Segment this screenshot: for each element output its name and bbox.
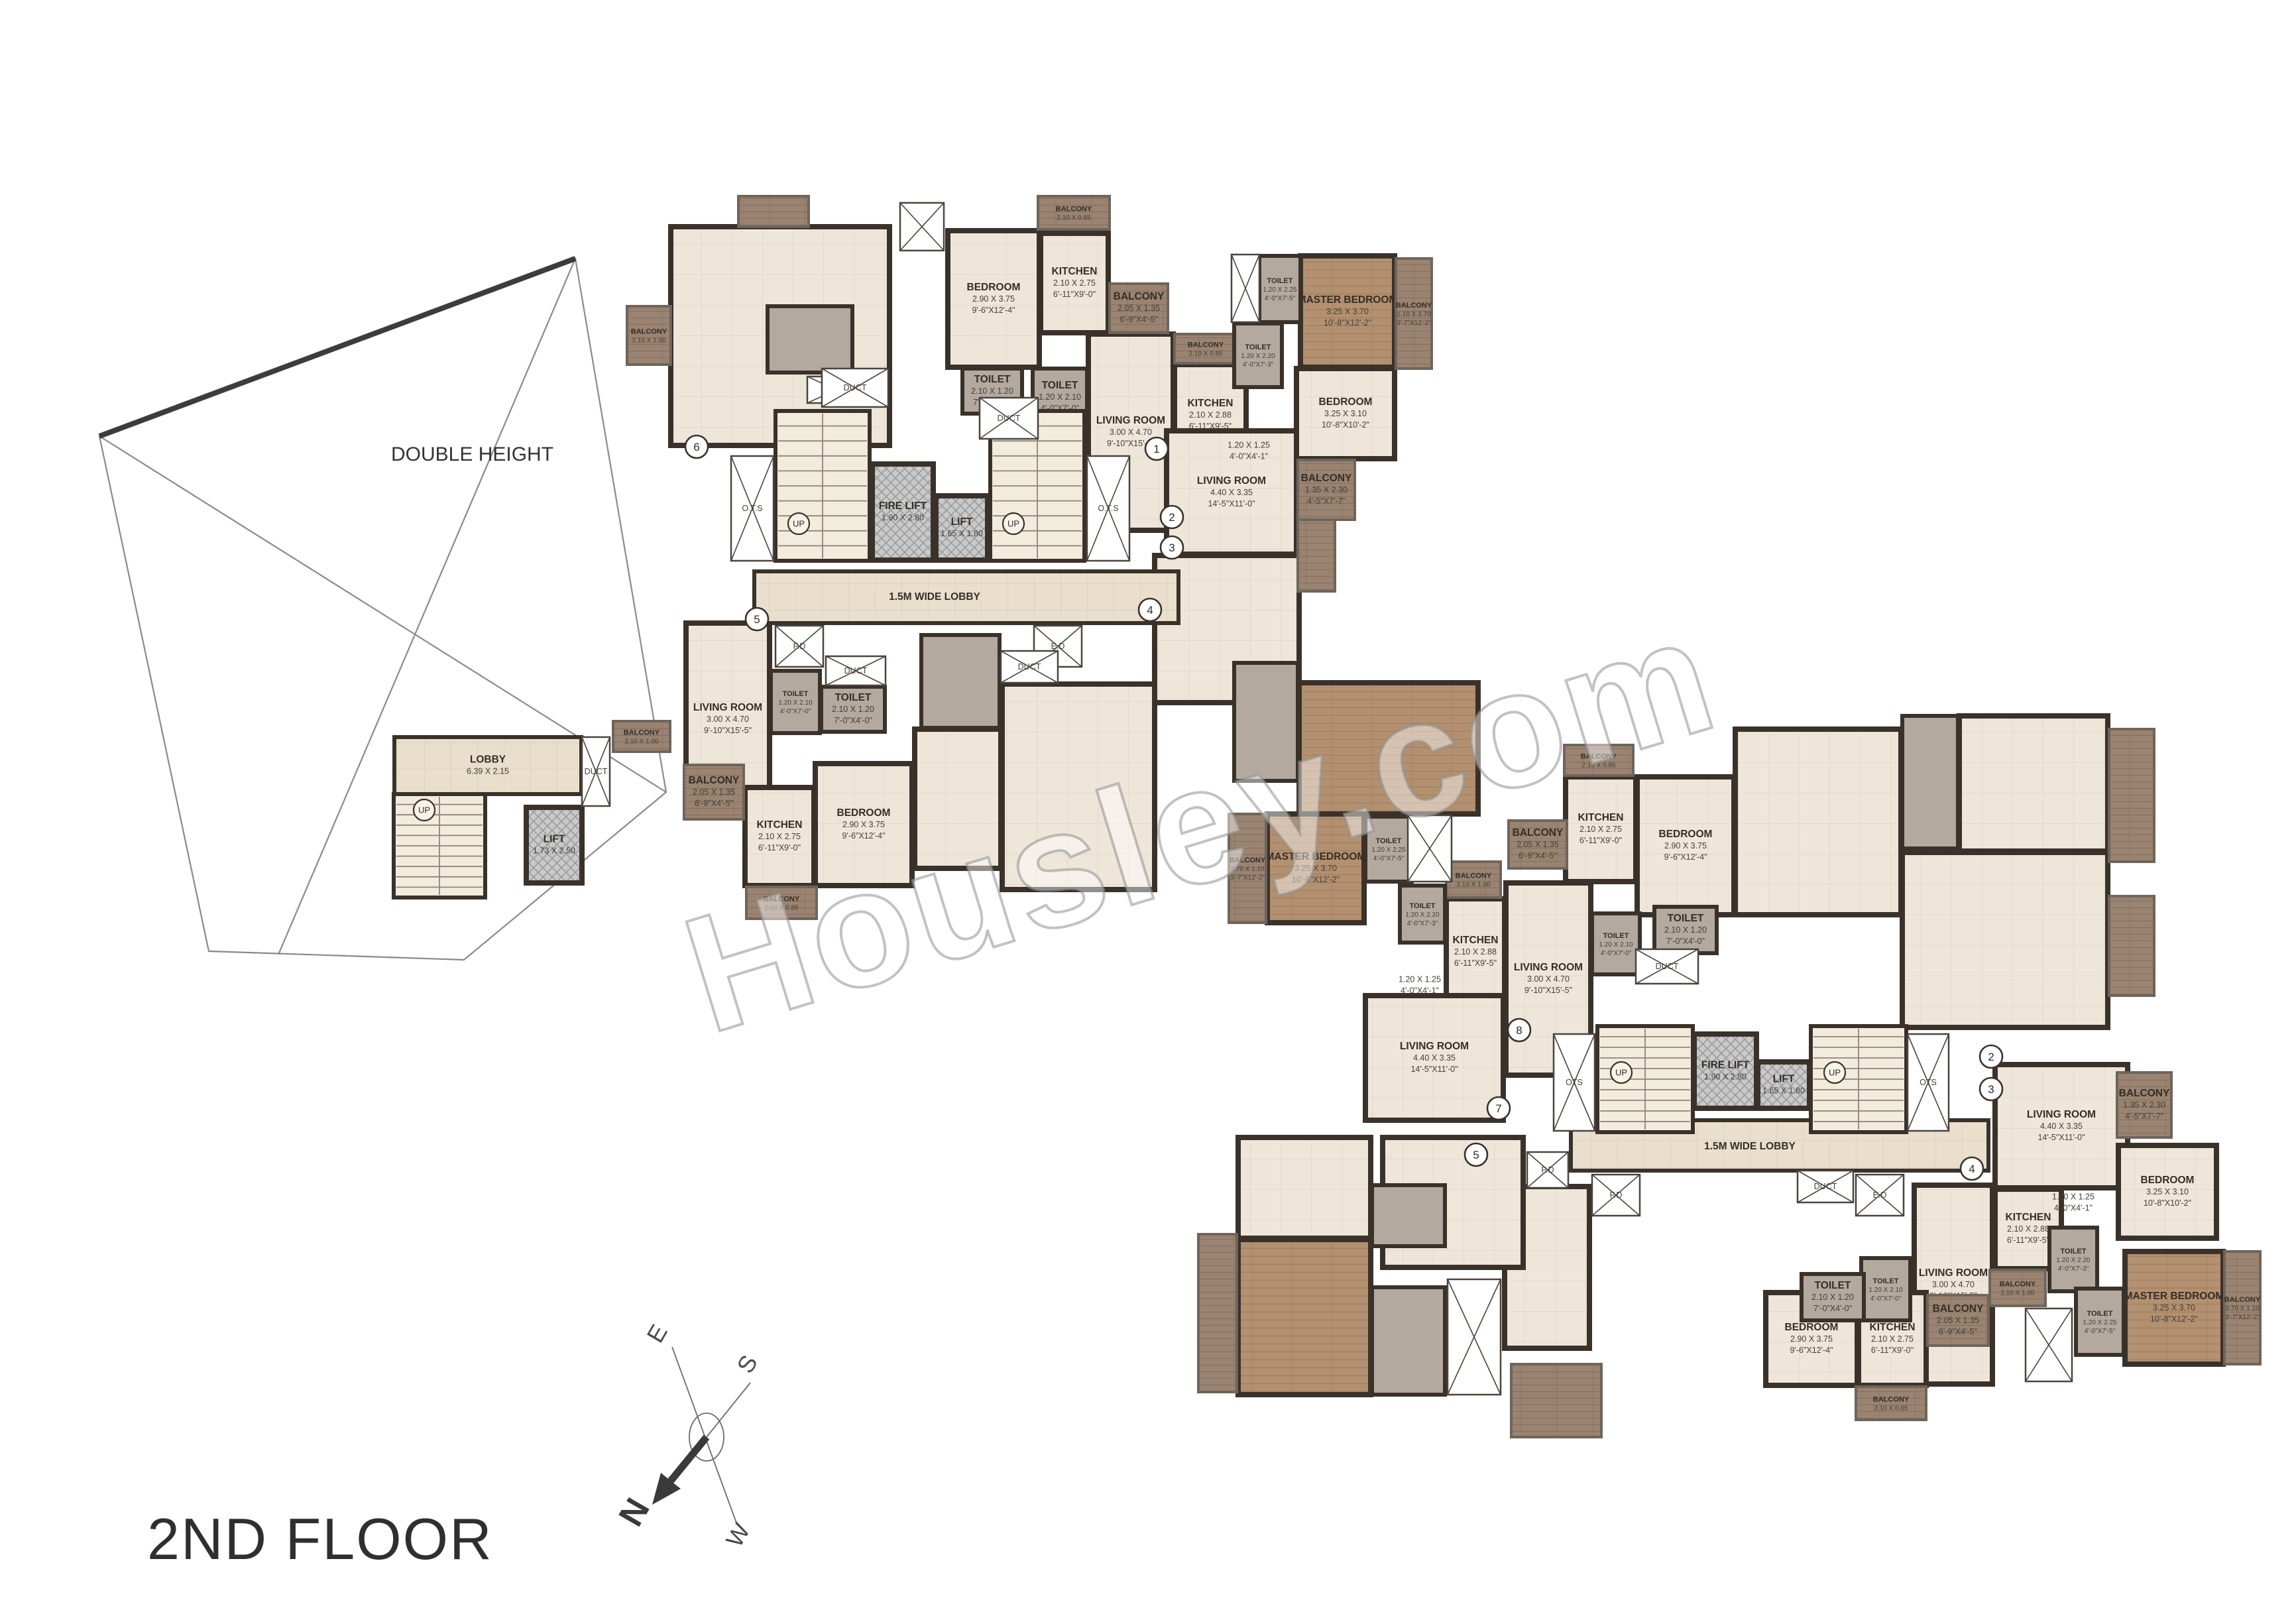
room-label: 10'-8"X10'-2" (1322, 420, 1369, 430)
room-label: 2.10 X 2.75 (1579, 825, 1622, 834)
room-balcony: BALCONY2.10 X 0.85 (1175, 334, 1237, 363)
lift-floor (936, 496, 988, 560)
room-o-t-s: O.T.S (731, 456, 774, 561)
room-label: 3.25 X 3.70 (2153, 1303, 2195, 1312)
unit-circle-5: 5 (746, 608, 768, 630)
room-plain (1238, 1137, 1371, 1238)
room-label: 1 (1153, 443, 1159, 455)
room-label: FIRE LIFT (879, 500, 927, 512)
room-label: LIVING ROOM (1919, 1267, 1988, 1279)
plain-floor (1735, 729, 1901, 915)
room-label: BEDROOM (967, 282, 1021, 293)
room-stair: UP (394, 794, 485, 898)
room-label: 6'-9"X4'-5" (1519, 851, 1557, 860)
room-f-d: F.D (775, 626, 823, 667)
room-label: 2.10 X 1.00 (624, 738, 659, 746)
room-label: BALCONY (1456, 872, 1492, 880)
room-label: LOBBY (470, 754, 506, 766)
room-label: 1.10 X 3.70 (1397, 311, 1431, 318)
room-label: OTS (1920, 1078, 1937, 1087)
room-label: TOILET (1815, 1280, 1851, 1291)
room-label: E.D (1873, 1190, 1887, 1200)
room-bedroom: BEDROOM2.90 X 3.759'-6"X12'-4" (1637, 777, 1734, 915)
room-label: TOILET (2087, 1310, 2113, 1318)
room-label: 2.05 X 1.35 (1937, 1316, 1979, 1325)
room-label: 5 (754, 613, 760, 626)
room-label: O.T.S (742, 504, 762, 513)
room-label: LIVING ROOM (693, 702, 762, 713)
room-label: 9'-10"X15'-5" (704, 726, 752, 735)
room-label: 3 (1169, 542, 1175, 554)
room-label: BEDROOM (2141, 1175, 2195, 1186)
room-label: 4'-0"X4'-1" (1230, 452, 1268, 461)
room-label: TOILET (835, 692, 872, 703)
room-label: DUCT (844, 666, 868, 675)
room-label: 4.40 X 3.35 (1210, 488, 1253, 497)
lift-floor (526, 807, 582, 883)
room-label: BEDROOM (1319, 396, 1373, 408)
room-label: 6'-9"X4'-5" (1119, 315, 1158, 324)
room-label: TOILET (1603, 932, 1629, 940)
room-label: 3.70 X 1.10 (2225, 1305, 2260, 1312)
room-label: 9'-10"X15'-5" (1524, 986, 1572, 995)
room-label: DUCT (998, 414, 1021, 423)
room-label: 1.20 X 1.25 (1399, 975, 1441, 984)
room-label: BALCONY (1396, 302, 1432, 310)
room-label: 2.10 X 1.00 (1456, 882, 1491, 889)
room-label: LIFT (1773, 1074, 1795, 1085)
room-label: UP (1615, 1068, 1627, 1078)
room-plain (1959, 716, 2108, 851)
room-label: 3 (1988, 1083, 1994, 1096)
room-label: 3.00 X 4.70 (1932, 1280, 1975, 1289)
room-label: BALCONY (631, 328, 667, 336)
room-label: 1.20 X 2.25 (1263, 286, 1297, 294)
room-label: 1.90 X 2.80 (1704, 1073, 1747, 1082)
room-wood (1238, 1240, 1371, 1395)
room-label: BALCONY (1933, 1303, 1984, 1314)
room-label: 1.90 X 2.80 (882, 513, 924, 522)
room-label: BALCONY (2000, 1281, 2036, 1289)
room-living-room: LIVING ROOM4.40 X 3.3514'-5"X11'-0" (1365, 996, 1503, 1120)
room-o-t-s: O.T.S (1087, 456, 1129, 561)
room-label: TOILET (1245, 343, 1271, 351)
room-label: 1.20 X 1.25 (2052, 1192, 2095, 1202)
room-label: E.D (1051, 642, 1065, 651)
room-label: 2.10 X 2.75 (758, 832, 801, 841)
room-label: P.D (1541, 1165, 1554, 1175)
room-label: 4'-0"X4'-1" (2054, 1204, 2093, 1213)
room-label: 2.10 X 2.75 (1871, 1334, 1914, 1344)
room-label: BALCONY (689, 775, 740, 786)
room-label: BALCONY (1114, 291, 1165, 302)
room-label: 2.10 X 2.88 (2007, 1224, 2049, 1234)
room-label: 1.5M WIDE LOBBY (889, 591, 980, 603)
room-stair: UP (775, 411, 870, 561)
room-toilet (921, 635, 1000, 728)
room-label: 2.05 X 1.35 (1517, 840, 1559, 849)
room-toilet: TOILET2.10 X 1.207'-0"X4'-0" (821, 687, 885, 732)
room-label: 4'-0"X4'-1" (1401, 986, 1439, 996)
room-label: 4'-5"X7'-7" (2125, 1112, 2163, 1121)
room-label: 2.10 X 0.85 (1188, 351, 1223, 358)
room-label: BEDROOM (1659, 829, 1713, 840)
room-label: TOILET (974, 374, 1011, 385)
room-toilet: TOILET2.10 X 1.207'-0"X4'-0" (1802, 1274, 1864, 1320)
room-toilet: TOILET1.20 X 2.254'-0"X7'-5" (2076, 1289, 2124, 1355)
room-label: BALCONY (2119, 1088, 2170, 1099)
room-label: 5 (1473, 1149, 1479, 1161)
room-label: 2.10 X 2.88 (1454, 947, 1497, 957)
compass-north-label: N (612, 1492, 658, 1533)
room-label: 1.20 X 2.10 (778, 699, 813, 707)
room-label: 1.65 X 1.80 (941, 529, 983, 538)
room-bedroom: BEDROOM2.90 X 3.759'-6"X12'-4" (948, 231, 1039, 367)
room-toilet: TOILET2.10 X 1.207'-0"X4'-0" (1654, 907, 1717, 953)
room-label: 3.25 X 3.10 (2146, 1187, 2189, 1196)
unit-circle-3: 3 (1161, 536, 1183, 559)
room-label: 4 (1147, 604, 1153, 616)
room-toilet: TOILET1.20 X 2.254'-0"X7'-5" (1259, 256, 1300, 322)
room-stair: UP (1597, 1026, 1693, 1132)
room-label: 4'-0"X7'-5" (1265, 295, 1296, 302)
room-label: 4'-5"X7'-7" (1307, 496, 1346, 506)
toilet-floor (768, 306, 852, 373)
room-toilet: TOILET1.20 X 2.104'-0"X7'-0" (771, 671, 820, 733)
room-label: MASTER BEDROOM (2124, 1291, 2224, 1302)
room-balcony (2109, 729, 2154, 862)
room-label: LIVING ROOM (1514, 962, 1583, 973)
unit-circle-5: 5 (1465, 1143, 1487, 1166)
room-label: LIVING ROOM (1197, 475, 1266, 487)
room-balcony: BALCONY3.70 X 1.103'-7"X12'-2" (2224, 1251, 2261, 1364)
room-toilet (768, 306, 852, 373)
room-toilet (1902, 716, 1958, 848)
room-label: 1.73 X 2.50 (533, 846, 575, 856)
room-label: 1.20 X 2.20 (2056, 1257, 2091, 1264)
room-duct (1448, 1279, 1501, 1395)
room-label: 9'-6"X12'-4" (972, 306, 1015, 315)
room-label: 3.00 X 4.70 (1110, 428, 1152, 437)
room-lobby: LOBBY6.39 X 2.15 (394, 737, 581, 794)
double-height-thick-edge (99, 259, 575, 436)
room-label: 2.10 X 1.20 (971, 386, 1013, 396)
room-balcony: BALCONY2.05 X 1.356'-9"X4'-5" (1110, 284, 1168, 333)
lift-floor (1758, 1062, 1809, 1108)
compass-east-label: E (641, 1320, 673, 1347)
room-label: KITCHEN (1453, 935, 1499, 946)
room-label: TOILET (1042, 380, 1078, 391)
room-f-d: F.D (1592, 1175, 1640, 1216)
room-label: 2.90 X 3.75 (972, 294, 1015, 304)
room-label: 3.00 X 4.70 (1527, 974, 1570, 984)
room-label: 6'-11"X9'-5" (2007, 1236, 2049, 1245)
floor-plan-page: DOUBLE HEIGHT BEDROOM2.90 X 3.759'-6"X12… (0, 0, 2296, 1624)
unit-circle-4: 4 (1139, 599, 1161, 621)
room-label: 2.10 X 1.20 (832, 705, 874, 714)
room-balcony (738, 196, 809, 227)
room-plain (1735, 729, 1901, 915)
room-label: 2.10 X 1.20 (1811, 1293, 1854, 1302)
lobby-floor (394, 737, 581, 794)
room-p-d: P.D (1527, 1152, 1568, 1188)
room-label: 4'-0"X7'-3" (1407, 920, 1438, 927)
room-duct: DUCT (822, 369, 888, 407)
room-balcony (1298, 520, 1335, 591)
unit-circle-1: 1 (1145, 437, 1168, 460)
room-label: UP (1829, 1068, 1841, 1078)
room-bedroom: BEDROOM3.25 X 3.1010'-8"X10'-2" (2118, 1145, 2216, 1238)
room-label: 4.40 X 3.35 (1413, 1053, 1456, 1063)
room-label: 6'-11"X9'-0" (1053, 290, 1096, 299)
room-label: DUCT (1018, 662, 1041, 671)
room-label: 3.00 X 4.70 (707, 715, 749, 724)
unit-circle-2: 2 (1161, 506, 1183, 528)
room-label: UP (418, 805, 430, 815)
plain-floor (1959, 716, 2108, 851)
room-label: DUCT (1656, 962, 1679, 971)
room-label: LIVING ROOM (1096, 415, 1165, 426)
room-toilet (1372, 1287, 1445, 1395)
room-ots: OTS (1554, 1034, 1595, 1131)
room-label: DUCT (1814, 1182, 1837, 1191)
unit-circle-7: 7 (1487, 1097, 1510, 1120)
room-label: KITCHEN (1870, 1322, 1916, 1333)
room-label: 6 (693, 441, 699, 453)
room-balcony: BALCONY2.10 X 1.00 (613, 721, 670, 752)
plain-floor (1238, 1137, 1371, 1238)
room-toilet (1372, 1185, 1445, 1246)
room-stair: UP (1811, 1026, 1906, 1132)
room-label: OTS (1566, 1078, 1583, 1087)
room-label: UP (1007, 519, 1019, 529)
balcony-floor (1198, 1234, 1237, 1392)
room-label: 1.20 X 2.20 (1405, 911, 1440, 919)
room-balcony (1198, 1234, 1237, 1392)
room-label: 2.10 X 1.00 (632, 337, 666, 345)
room-balcony: BALCONY1.35 X 2.304'-5"X7'-7" (1298, 460, 1355, 520)
room-label: 7 (1495, 1102, 1501, 1115)
plain-floor (1902, 852, 2108, 1027)
room-label: KITCHEN (1052, 266, 1098, 277)
room-label: 7'-0"X4'-0" (1666, 937, 1705, 946)
room-label: 4'-0"X7'-5" (2085, 1328, 2116, 1335)
unit-circle-2: 2 (1980, 1045, 2002, 1068)
wood-floor (1238, 1240, 1371, 1395)
room-balcony: BALCONY1.35 X 2.304'-5"X7'-7" (2117, 1073, 2171, 1137)
room-duct: DUCT (1798, 1171, 1853, 1202)
room-label: 2.10 X 2.75 (1053, 278, 1096, 288)
room-label: 4'-0"X7'-3" (1243, 361, 1274, 369)
room-kitchen: KITCHEN2.10 X 2.886'-11"X9'-5" (1446, 899, 1505, 1005)
room-label: KITCHEN (1578, 812, 1624, 823)
balcony-floor (1511, 1364, 1601, 1437)
toilet-floor (1372, 1185, 1445, 1246)
room-lift: LIFT1.73 X 2.50 (526, 807, 582, 883)
toilet-floor (1902, 716, 1958, 848)
room-label: 4'-0"X7'-3" (2058, 1265, 2089, 1273)
room-label: 1.20 X 1.25 (1228, 441, 1270, 450)
room-balcony: BALCONY2.10 X 0.85 (1038, 196, 1110, 229)
room-label: 14'-5"X11'-0" (1208, 499, 1255, 508)
room-label: 9'-6"X12'-4" (1664, 852, 1707, 862)
room-balcony: BALCONY2.05 X 1.356'-9"X4'-5" (1927, 1295, 1988, 1346)
room-label: 4'-0"X7'-0" (1601, 950, 1632, 957)
room-label: 10'-8"X12'-2" (1324, 318, 1371, 327)
balcony-floor (2109, 729, 2154, 862)
room-duct: DUCT (1001, 651, 1058, 683)
room-label: 2.05 X 1.35 (1118, 304, 1160, 313)
room-label: UP (793, 519, 805, 529)
room-label: 3.25 X 3.10 (1324, 409, 1367, 418)
room-lift: LIFT1.65 X 1.80 (1758, 1062, 1809, 1108)
room-label: 2.10 X 0.85 (1057, 215, 1091, 222)
room-label: 4'-0"X7'-0" (1870, 1295, 1902, 1303)
room-label: 1.35 X 2.30 (1305, 485, 1348, 494)
room-label: 1.20 X 2.25 (2083, 1319, 2117, 1326)
room-label: 2 (1169, 511, 1175, 524)
room-label: TOILET (2061, 1247, 2087, 1255)
room-label: 3'-7"X12'-2" (2225, 1314, 2260, 1321)
room-label: 6'-9"X4'-5" (1939, 1327, 1977, 1336)
room-label: FIRE LIFT (1701, 1060, 1750, 1071)
room-label: 1.20 X 2.20 (1241, 353, 1275, 360)
room-label: TOILET (1267, 277, 1293, 285)
room-balcony: BALCONY2.05 X 1.356'-9"X4'-5" (684, 765, 744, 819)
room-balcony: BALCONY2.10 X 1.00 (1446, 862, 1501, 898)
room-label: 2.90 X 3.75 (1790, 1334, 1833, 1344)
room-label: 2.10 X 2.88 (1189, 410, 1232, 420)
unit-circle-8: 8 (1508, 1019, 1530, 1041)
room-label: 1.20 X 2.10 (1039, 392, 1081, 402)
room-label: 7'-0"X4'-0" (834, 716, 872, 725)
room-label: BALCONY (624, 729, 660, 737)
floor-plan-canvas: DOUBLE HEIGHT BEDROOM2.90 X 3.759'-6"X12… (0, 0, 2296, 1624)
compass-south-label: S (731, 1350, 763, 1377)
room-label: 1.20 X 2.10 (1599, 941, 1633, 949)
room-label: BALCONY (2224, 1296, 2261, 1304)
double-height-label: DOUBLE HEIGHT (391, 443, 553, 465)
room-balcony (2109, 896, 2154, 996)
room-label: 3.25 X 3.70 (1326, 307, 1369, 316)
room-label: 6'-11"X9'-0" (1579, 836, 1622, 845)
room-label: 2.90 X 3.75 (1664, 841, 1707, 850)
floor-title: 2ND FLOOR (147, 1506, 493, 1572)
room-label: DUCT (585, 767, 608, 776)
room-label: 2.05 X 1.35 (693, 787, 735, 797)
unit-circle-4: 4 (1961, 1157, 1983, 1180)
room-label: LIVING ROOM (2027, 1109, 2096, 1120)
room-e-d: E.D (1856, 1175, 1904, 1216)
room-label: 4.40 X 3.35 (2040, 1122, 2083, 1131)
room-label: BALCONY (1056, 205, 1092, 213)
room-label: LIVING ROOM (1400, 1041, 1469, 1052)
room-label: 8 (1516, 1024, 1522, 1037)
room-label: 1.20 X 1.254'-0"X4'-1" (1399, 975, 1441, 996)
room-label: TOILET (1410, 902, 1436, 910)
room-balcony: BALCONY2.10 X 1.00 (1990, 1270, 2045, 1306)
unit-circle-6: 6 (685, 435, 708, 458)
fire-lift-floor (872, 464, 933, 560)
room-balcony: BALCONY2.10 X 1.00 (627, 306, 671, 365)
room-label: 4 (1969, 1163, 1975, 1175)
room-1-5m-wide-lobby: 1.5M WIDE LOBBY (754, 571, 1178, 623)
room-label: 10'-8"X10'-2" (2144, 1198, 2191, 1208)
room-label: 1.5M WIDE LOBBY (1704, 1141, 1796, 1152)
room-label: BALCONY (1301, 473, 1352, 484)
room-label: DUCT (844, 383, 867, 392)
room-label: 4'-0"X7'-0" (780, 708, 811, 715)
balcony-floor (1298, 520, 1335, 591)
unit-circle-3: 3 (1980, 1078, 2002, 1100)
balcony-floor (2109, 896, 2154, 996)
room-label: F.D (793, 642, 806, 651)
room-label: 1.20 X 2.10 (1868, 1287, 1903, 1294)
room-bedroom: BEDROOM3.25 X 3.1010'-8"X10'-2" (1296, 369, 1395, 459)
room-toilet: TOILET1.20 X 2.204'-0"X7'-3" (1400, 886, 1445, 943)
toilet-floor (921, 635, 1000, 728)
room-label: 2.10 X 1.20 (1664, 925, 1707, 935)
room-fire-lift: FIRE LIFT1.90 X 2.80 (1694, 1034, 1756, 1108)
room-label: LIFT (544, 834, 565, 845)
room-toilet: TOILET1.20 X 2.104'-0"X7'-0" (1861, 1258, 1910, 1320)
room-label: 14'-5"X11'-0" (1410, 1065, 1458, 1074)
room-balcony (1511, 1364, 1601, 1437)
room-label: O.T.S (1098, 504, 1118, 513)
room-duct (2026, 1308, 2072, 1381)
room-duct (1232, 255, 1259, 322)
room-label: 2.10 X 1.00 (2000, 1290, 2035, 1297)
room-master-bedroom: MASTER BEDROOM3.25 X 3.7010'-8"X12'-2" (2124, 1251, 2224, 1364)
toilet-floor (1372, 1287, 1445, 1395)
room-label: BEDROOM (837, 807, 891, 819)
compass-rose: E S N W (612, 1320, 763, 1552)
room-plain (1902, 852, 2108, 1027)
room-duct: DUCT (1636, 949, 1698, 984)
room-label: 6'-9"X4'-5" (695, 799, 733, 808)
room-label: BALCONY (1873, 1396, 1910, 1404)
room-label: 9'-6"X12'-4" (1790, 1346, 1833, 1355)
room-master-bedroom: MASTER BEDROOM3.25 X 3.7010'-8"X12'-2" (1298, 256, 1398, 367)
room-label: KITCHEN (1188, 398, 1234, 409)
room-toilet: TOILET1.20 X 2.104'-0"X7'-0" (1592, 913, 1640, 974)
room-ots: OTS (1908, 1034, 1949, 1131)
room-label: TOILET (783, 690, 809, 698)
room-duct (900, 203, 944, 251)
room-label: 6.39 X 2.15 (467, 767, 509, 776)
room-label: F.D (1610, 1190, 1623, 1200)
room-balcony: BALCONY1.10 X 3.703'-7"X12'-2" (1396, 259, 1432, 369)
room-label: LIFT (951, 516, 973, 528)
room-balcony: BALCONY2.05 X 1.356'-9"X4'-5" (1509, 821, 1567, 868)
room-toilet: TOILET1.20 X 2.204'-0"X7'-3" (2049, 1228, 2097, 1291)
room-duct: DUCT (582, 737, 610, 806)
room-label: 14'-5"X11'-0" (2038, 1133, 2085, 1142)
room-label: 6'-11"X9'-5" (1454, 958, 1497, 968)
compass-west-label: W (720, 1519, 756, 1552)
room-label: BALCONY (1188, 341, 1224, 349)
room-toilet: TOILET1.20 X 2.204'-0"X7'-3" (1234, 323, 1282, 387)
room-label: 1.65 X 1.80 (1762, 1086, 1805, 1096)
room-fire-lift: FIRE LIFT1.90 X 2.80 (872, 464, 933, 560)
room-kitchen: KITCHEN2.10 X 2.756'-11"X9'-0" (1041, 233, 1108, 333)
room-label: 6'-11"X9'-0" (1871, 1346, 1914, 1355)
room-label: BEDROOM (1785, 1322, 1839, 1333)
room-label: 2.10 X 0.85 (1874, 1405, 1908, 1413)
room-label: KITCHEN (757, 819, 803, 831)
room-living-room: LIVING ROOM4.40 X 3.3514'-5"X11'-0" (1995, 1065, 2128, 1188)
room-label: KITCHEN (2006, 1212, 2051, 1223)
